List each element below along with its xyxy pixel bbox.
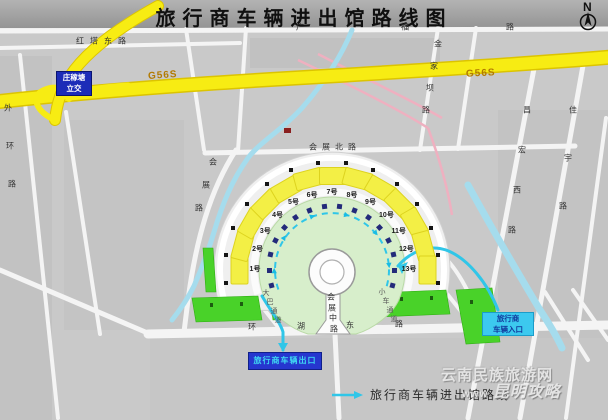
hall-label: 4号 — [272, 210, 283, 220]
road-label-huizhanzhong: 中 — [329, 313, 337, 324]
hall-block — [418, 256, 436, 285]
vehicle-exit-box: 旅行商车辆出口 — [248, 352, 322, 370]
hall-label: 1号 — [250, 264, 261, 274]
road-label-jinjiaba: 路 — [422, 105, 430, 116]
road-label-huanhudong: 湖 — [297, 321, 305, 332]
interchange-line2: 立交 — [57, 83, 91, 94]
road-label-huizhan: 路 — [195, 203, 203, 214]
road-label-huanhudong: 东 — [346, 320, 354, 331]
road-label-jinjiaba: 家 — [430, 61, 438, 72]
road-label-waihuan: 外 — [4, 103, 12, 114]
hall-label: 6号 — [307, 190, 318, 200]
road-label-guangfu: 路 — [506, 22, 514, 33]
road-label-xiaoche: 道 — [391, 314, 398, 324]
compass-icon — [578, 11, 598, 36]
vehicle-entry-box: 旅行商 车辆入口 — [482, 312, 534, 336]
watermark-brand-name: 昆明攻略 — [493, 384, 561, 401]
road-label-changhongxi: 宏 — [518, 145, 526, 156]
expressway-label-west: G56S — [148, 69, 178, 82]
road-label-hongta: 红 — [76, 36, 84, 47]
road-label-waihuan: 环 — [6, 141, 14, 152]
route-arrow-icon: ▶ — [271, 268, 278, 273]
hall-label: 12号 — [399, 244, 414, 254]
road-label-changhongxi: 西 — [513, 185, 521, 196]
column-marker — [268, 282, 274, 288]
road-label-huizhan: 展 — [202, 180, 210, 191]
expressway-label-east: G56S — [466, 67, 496, 80]
road-label-jinjiaba: 金 — [434, 39, 442, 50]
outer-marker — [395, 182, 399, 186]
hall-label: 3号 — [260, 226, 271, 236]
road-label-guangfu: 广 — [296, 22, 304, 33]
hall-label: 5号 — [288, 197, 299, 207]
road-label-huizhan: 会 — [209, 157, 217, 168]
entry-line2: 车辆入口 — [483, 324, 533, 335]
outer-marker — [224, 253, 228, 257]
column-marker — [322, 204, 328, 210]
outer-marker — [436, 253, 440, 257]
road-label-huizhanzhong: 会 — [327, 292, 335, 303]
road-label-huizhanzhong: 展 — [328, 302, 336, 313]
watermark-brand: www 昆明攻略 — [462, 378, 561, 402]
interchange-box: 庄稼塘 立交 — [56, 71, 92, 96]
watermark-www: www — [462, 389, 488, 400]
outer-marker — [289, 168, 293, 172]
map-title: 旅行商车辆进出馆路线图 — [0, 2, 608, 31]
hall-label: 2号 — [252, 244, 263, 254]
outer-marker — [344, 161, 348, 165]
road-label-jiayu: 佳 — [569, 105, 577, 116]
outer-marker — [224, 281, 228, 285]
road-label-hongta: 路 — [118, 36, 126, 47]
route-map-canvas: 旅行商车辆进出馆路线图 N G56S G56S 庄稼塘 立交 旅行商车辆出口 旅… — [0, 0, 608, 420]
hall-label: 8号 — [346, 190, 357, 200]
outer-marker — [245, 202, 249, 206]
small-red-marker — [284, 128, 291, 133]
road-label-jiayu: 宇 — [564, 153, 572, 164]
column-marker — [392, 268, 397, 273]
outer-marker — [265, 182, 269, 186]
outer-marker — [316, 161, 320, 165]
road-label-jinjiaba: 坝 — [426, 83, 434, 94]
road-label-daba: 道 — [275, 315, 282, 325]
outer-marker — [371, 168, 375, 172]
road-label-jiayu: 路 — [559, 201, 567, 212]
entry-line1: 旅行商 — [483, 313, 533, 324]
road-label-huizhanbei: 北 — [335, 142, 343, 153]
road-label-changhongxi: 昌 — [523, 105, 531, 116]
road-label-waihuan: 路 — [8, 179, 16, 190]
road-label-guangfu: 福 — [401, 22, 409, 33]
hall-label: 13号 — [402, 264, 417, 274]
road-label-huizhanzhong: 路 — [330, 323, 338, 334]
hall-label: 7号 — [327, 187, 338, 197]
road-label-hongta: 塔 — [90, 36, 98, 47]
road-label-huizhanbei: 展 — [322, 142, 330, 153]
column-marker — [337, 204, 343, 210]
outer-marker — [429, 226, 433, 230]
hall-label: 11号 — [391, 226, 405, 236]
outer-marker — [415, 202, 419, 206]
hall-label: 10号 — [379, 210, 394, 220]
route-arrow-icon: ▶ — [385, 263, 392, 269]
road-label-changhongxi: 路 — [508, 225, 516, 236]
outer-marker — [436, 281, 440, 285]
road-label-huizhanbei: 会 — [309, 142, 317, 153]
outer-marker — [231, 226, 235, 230]
legend-route-icon — [332, 390, 364, 400]
interchange-line1: 庄稼塘 — [57, 72, 91, 83]
road-label-huanhudong: 环 — [248, 322, 256, 333]
road-label-huizhanbei: 路 — [348, 142, 356, 153]
road-label-hongta: 东 — [104, 36, 112, 47]
hall-label: 9号 — [365, 197, 376, 207]
